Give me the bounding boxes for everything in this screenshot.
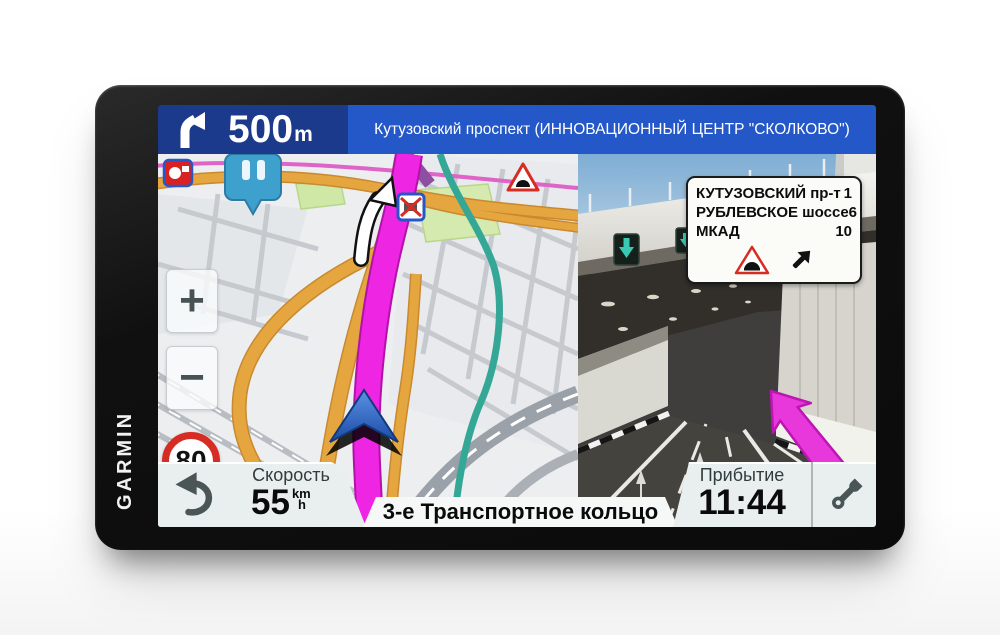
speed-unit: kmh	[292, 488, 311, 510]
plus-icon: +	[179, 279, 205, 323]
current-street-bar[interactable]: 3-е Транспортное кольцо	[363, 497, 678, 527]
sign-row: РУБЛЕВСКОЕ шоссе6	[696, 203, 852, 222]
tunnel-warning-icon	[734, 244, 770, 276]
minus-icon: −	[179, 356, 205, 400]
distance-to-maneuver: 500m	[228, 110, 313, 150]
garmin-logo: GARMIN	[103, 385, 149, 535]
speed-value: 55	[251, 486, 290, 520]
bear-right-arrow-icon	[172, 110, 214, 150]
back-arrow-icon	[169, 469, 221, 521]
navigation-banner[interactable]: 500m Кутузовский проспект (ИННОВАЦИОННЫЙ…	[158, 105, 876, 154]
back-button[interactable]	[158, 462, 233, 527]
bear-right-mini-arrow	[788, 247, 814, 273]
current-street-name: 3-е Транспортное кольцо	[383, 499, 659, 525]
next-street-section: Кутузовский проспект (ИННОВАЦИОННЫЙ ЦЕНТ…	[348, 105, 876, 154]
garmin-device: GARMIN	[95, 85, 905, 550]
speed-camera-icon	[164, 160, 192, 186]
photo-background: GARMIN	[0, 0, 1000, 635]
next-street-name: Кутузовский проспект (ИННОВАЦИОННЫЙ ЦЕНТ…	[374, 121, 850, 139]
wrench-icon	[824, 473, 868, 517]
arrival-time: 11:44	[698, 486, 786, 520]
device-screen: + − 80	[158, 105, 876, 527]
no-trucks-sign	[398, 194, 424, 220]
sign-row: КУТУЗОВСКИЙ пр-т1	[696, 184, 852, 203]
zoom-in-button[interactable]: +	[166, 269, 218, 333]
next-maneuver-section: 500m	[158, 105, 348, 154]
sign-row: МКАД10	[696, 222, 852, 241]
tools-button[interactable]	[811, 462, 876, 527]
arrival-panel[interactable]: Прибытие 11:44	[673, 462, 811, 527]
zoom-out-button[interactable]: −	[166, 346, 218, 410]
junction-sign-board: КУТУЗОВСКИЙ пр-т1 РУБЛЕВСКОЕ шоссе6 МКАД…	[686, 176, 862, 284]
